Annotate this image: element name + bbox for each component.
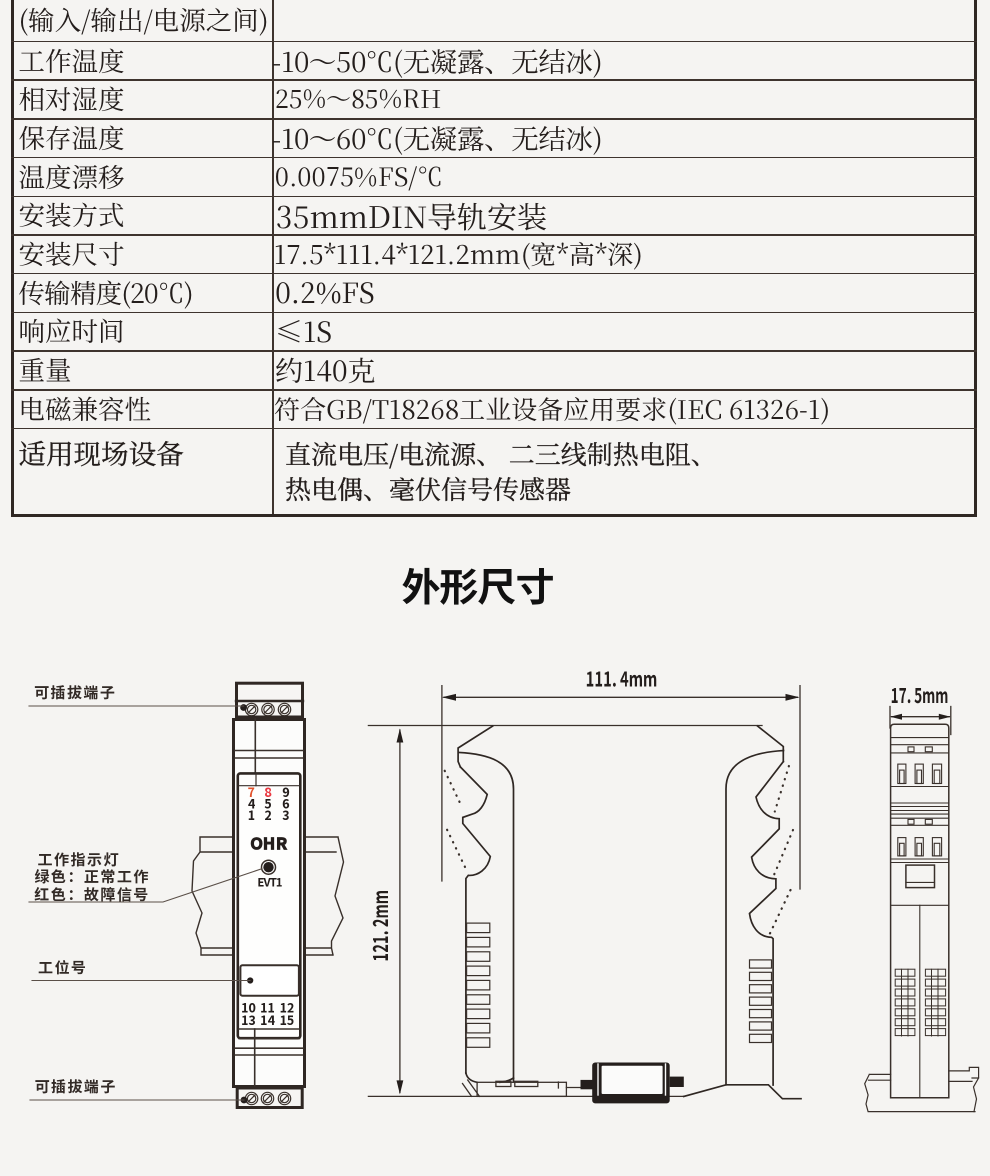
svg-text:111. 4mm: 111. 4mm xyxy=(586,664,657,694)
svg-text:13: 13 xyxy=(241,1010,256,1029)
svg-text:121. 2mm: 121. 2mm xyxy=(365,890,395,961)
svg-text:EVT1: EVT1 xyxy=(257,874,281,890)
svg-text:O: O xyxy=(250,831,263,855)
svg-text:14: 14 xyxy=(260,1010,275,1029)
svg-text:H: H xyxy=(263,831,276,855)
svg-text:2: 2 xyxy=(265,805,272,824)
svg-text:15: 15 xyxy=(280,1010,295,1029)
svg-text:1: 1 xyxy=(248,805,255,824)
svg-text:17. 5mm: 17. 5mm xyxy=(891,679,948,709)
svg-text:R: R xyxy=(276,831,287,855)
svg-text:3: 3 xyxy=(282,805,289,824)
